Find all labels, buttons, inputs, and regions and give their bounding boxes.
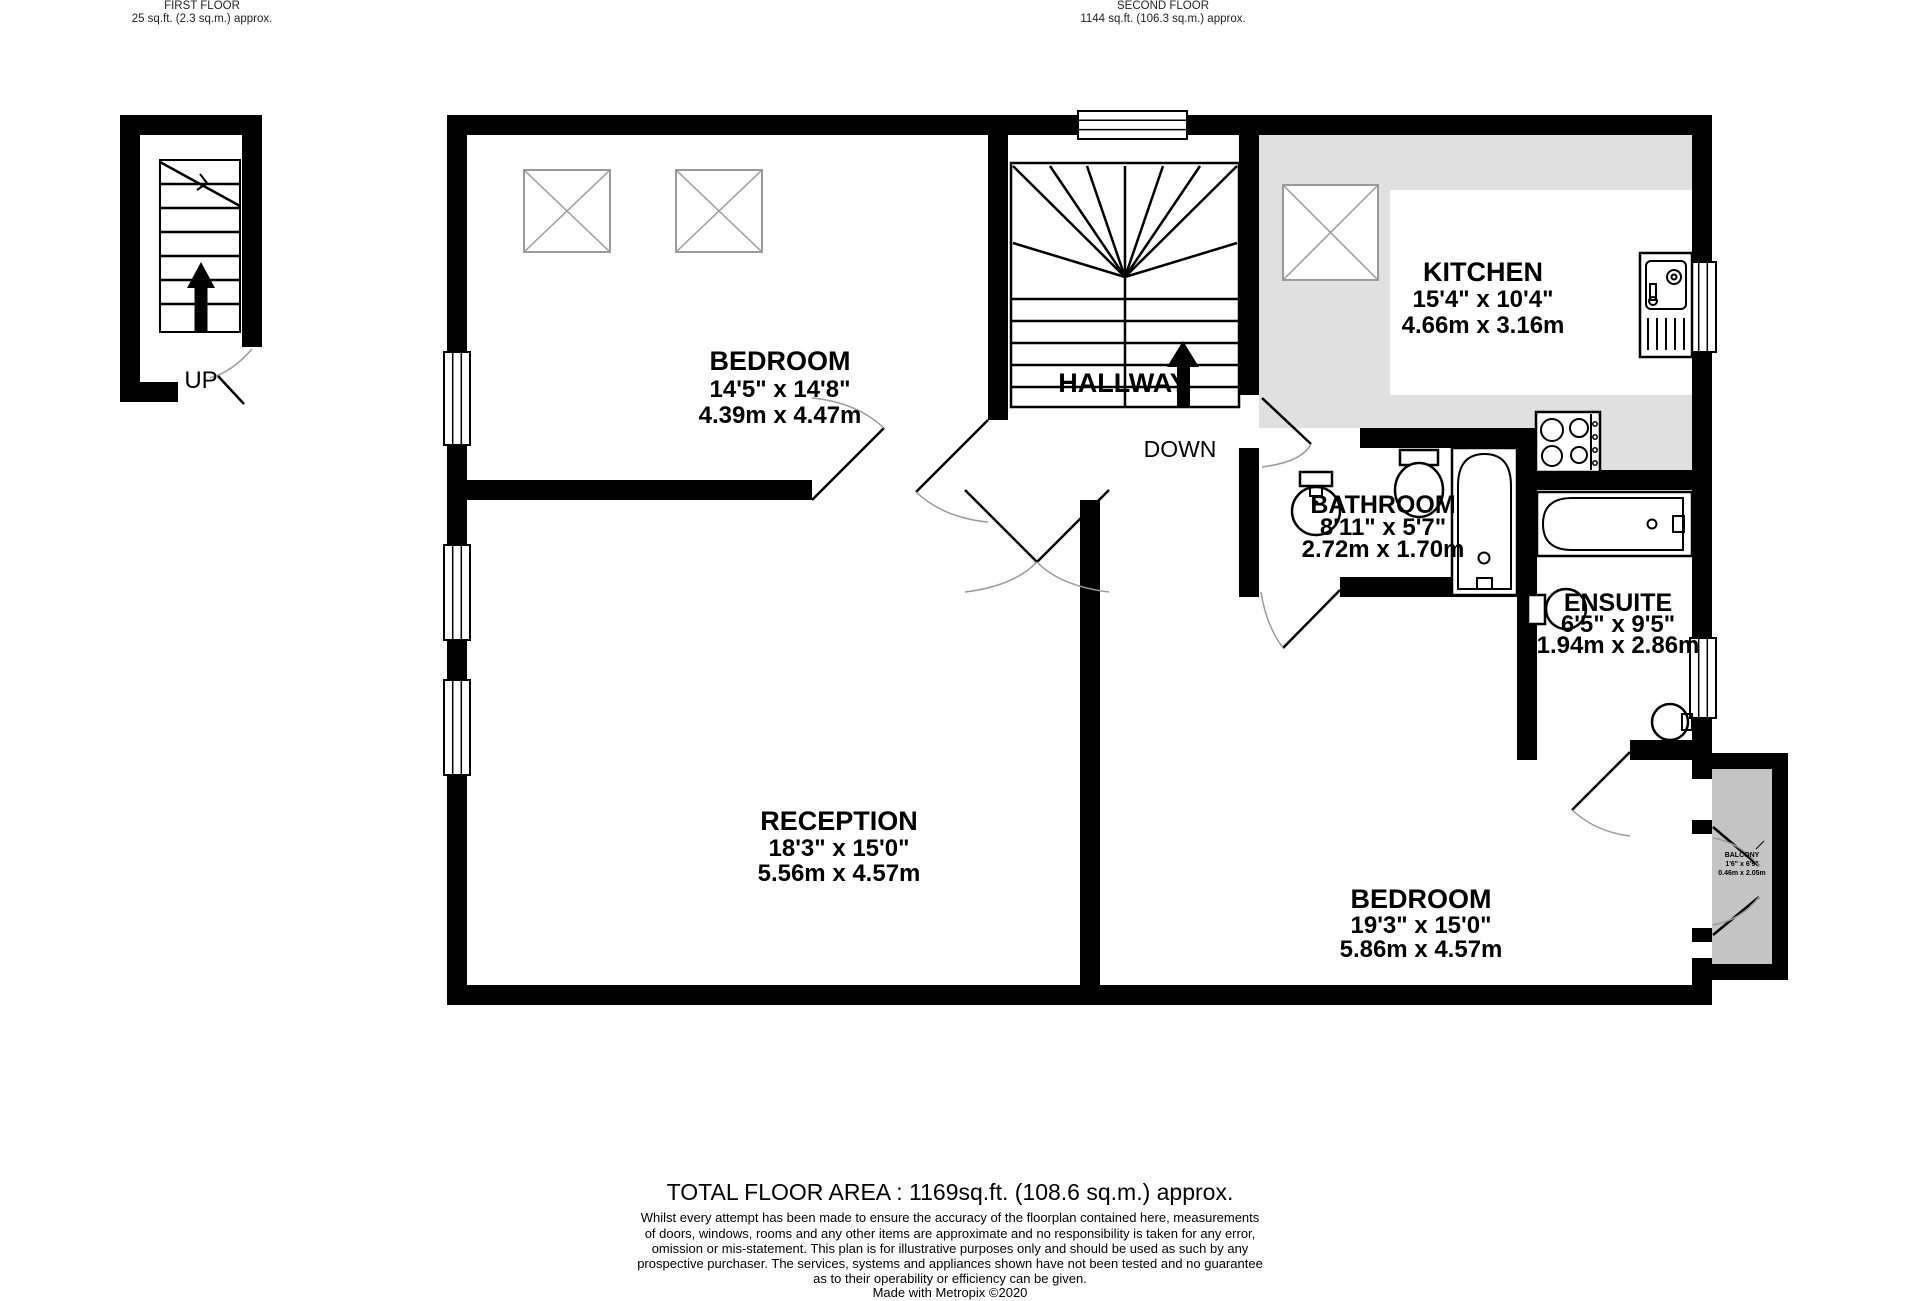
second-floor-title: SECOND FLOOR (1117, 0, 1209, 12)
balcony-door-gap (1692, 942, 1712, 958)
first-floor-area: 25 sq.ft. (2.3 sq.m.) approx. (132, 13, 273, 25)
second-floor-plan: BEDROOM 14'5" x 14'8" 4.39m x 4.47m KITC… (444, 111, 1788, 1005)
room-name: RECEPTION (760, 806, 918, 836)
room-metric: 4.39m x 4.47m (699, 402, 862, 429)
room-imperial: 1'6" x 6'9" (1725, 861, 1758, 868)
room-metric: 2.72m x 1.70m (1302, 536, 1465, 563)
disclaimer-line: as to their operability or efficiency ca… (813, 1271, 1087, 1286)
second-floor-area: 1144 sq.ft. (106.3 sq.m.) approx. (1080, 13, 1245, 25)
window-icon (444, 352, 470, 445)
footer: TOTAL FLOOR AREA : 1169sq.ft. (108.6 sq.… (637, 1179, 1263, 1300)
room-name: KITCHEN (1423, 257, 1543, 287)
room-name: BEDROOM (710, 346, 851, 376)
bathtub-icon (1452, 448, 1517, 595)
disclaimer-line: prospective purchaser. The services, sys… (637, 1256, 1263, 1271)
skylight-icon (676, 170, 762, 252)
hob-icon (1536, 412, 1600, 472)
room-metric: 5.86m x 4.57m (1340, 936, 1503, 963)
balcony-door-gap (1692, 779, 1712, 820)
room-label-bedroom1: BEDROOM 14'5" x 14'8" 4.39m x 4.47m (699, 346, 862, 429)
disclaimer-line: of doors, windows, rooms and any other i… (645, 1226, 1256, 1241)
room-imperial: 19'3" x 15'0" (1351, 912, 1492, 939)
room-imperial: 18'3" x 15'0" (769, 835, 910, 862)
disclaimer-line: Whilst every attempt has been made to en… (641, 1210, 1260, 1225)
skylight-icon (1283, 185, 1378, 280)
window-icon (1690, 262, 1716, 352)
kitchen-sink-icon (1640, 253, 1692, 357)
room-label-bathroom: BATHROOM 8'11" x 5'7" 2.72m x 1.70m (1302, 491, 1465, 563)
room-label-reception: RECEPTION 18'3" x 15'0" 5.56m x 4.57m (758, 806, 921, 887)
second-floor-header: SECOND FLOOR 1144 sq.ft. (106.3 sq.m.) a… (1080, 0, 1245, 25)
door-leaf (218, 376, 244, 404)
room-imperial: 15'4" x 10'4" (1413, 286, 1554, 313)
first-floor-plan: UP (120, 115, 262, 404)
room-name: BALCONY (1725, 852, 1760, 859)
total-floor-area: TOTAL FLOOR AREA : 1169sq.ft. (108.6 sq.… (667, 1179, 1234, 1205)
room-label-hallway: HALLWAY (1058, 368, 1188, 398)
room-metric: 1.94m x 2.86m (1537, 632, 1700, 659)
first-floor-title: FIRST FLOOR (164, 0, 240, 12)
room-label-bedroom2: BEDROOM 19'3" x 15'0" 5.86m x 4.57m (1340, 884, 1503, 963)
up-label: UP (184, 367, 217, 394)
room-name: BEDROOM (1351, 884, 1492, 914)
window-icon (444, 545, 470, 640)
room-label-kitchen: KITCHEN 15'4" x 10'4" 4.66m x 3.16m (1402, 257, 1565, 339)
window-icon (444, 680, 470, 775)
first-floor-header: FIRST FLOOR 25 sq.ft. (2.3 sq.m.) approx… (132, 0, 273, 25)
up-arrow-icon (187, 262, 215, 332)
room-metric: 4.66m x 3.16m (1402, 312, 1565, 339)
ensuite-sink-icon (1652, 704, 1692, 740)
skylight-icon (524, 170, 610, 252)
credit-line: Made with Metropix ©2020 (873, 1285, 1028, 1300)
ensuite-bathtub-icon (1537, 492, 1692, 556)
floorplan-page: FIRST FLOOR 25 sq.ft. (2.3 sq.m.) approx… (0, 0, 1920, 1301)
room-metric: 0.46m x 2.05m (1718, 870, 1765, 877)
disclaimer-line: omission or mis-statement. This plan is … (652, 1241, 1249, 1256)
room-imperial: 14'5" x 14'8" (710, 376, 851, 403)
floorplan-svg: FIRST FLOOR 25 sq.ft. (2.3 sq.m.) approx… (0, 0, 1920, 1301)
balcony-door-gap (1692, 834, 1712, 928)
window-icon (1078, 111, 1187, 139)
stairs-up-first-floor (160, 160, 240, 332)
room-metric: 5.56m x 4.57m (758, 860, 921, 887)
down-label: DOWN (1144, 436, 1217, 462)
